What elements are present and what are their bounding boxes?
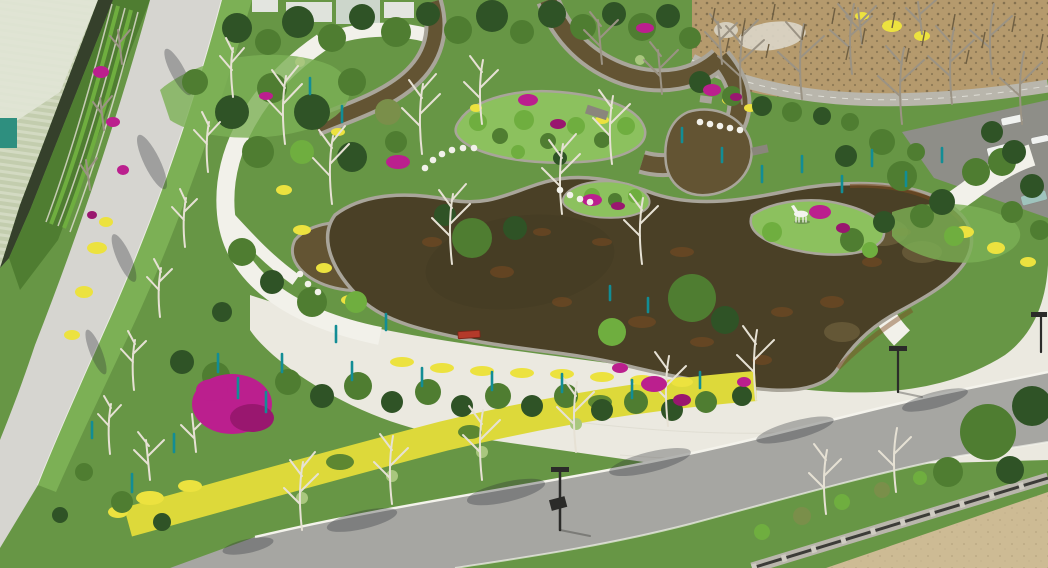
yellow-flowerbed xyxy=(510,368,534,378)
shrub-canopy xyxy=(960,404,1016,460)
algae-patch xyxy=(862,257,882,267)
shrub-canopy xyxy=(929,189,955,215)
stepping-stone xyxy=(422,165,429,172)
shrub-canopy xyxy=(944,226,964,246)
shrub-canopy xyxy=(521,395,543,417)
bougainvillea-cluster xyxy=(386,155,410,169)
shrub-canopy xyxy=(996,456,1024,484)
bougainvillea-cluster xyxy=(117,165,129,175)
bougainvillea-cluster xyxy=(518,94,538,106)
shrub-canopy xyxy=(260,270,284,294)
pond-reflection xyxy=(824,322,860,342)
shrub-canopy xyxy=(294,94,330,130)
shrub-canopy xyxy=(762,222,782,242)
shrub-canopy xyxy=(813,107,831,125)
shrub-canopy xyxy=(290,140,314,164)
shrub-canopy xyxy=(310,384,334,408)
shrub-canopy xyxy=(570,14,596,40)
yellow-flowerbed xyxy=(276,185,292,195)
shrub-canopy xyxy=(242,136,274,168)
stepping-stone xyxy=(567,192,574,199)
stepping-stone xyxy=(471,145,478,152)
shrub-canopy xyxy=(153,513,171,531)
bougainvillea-cluster xyxy=(230,404,274,432)
shrub-canopy xyxy=(782,102,802,122)
algae-patch xyxy=(690,337,714,347)
shrub-canopy xyxy=(514,110,534,130)
stepping-stone xyxy=(430,157,437,164)
shrub-canopy xyxy=(469,113,487,131)
shrub-canopy xyxy=(337,142,367,172)
yellow-flowerbed xyxy=(136,491,164,505)
yellow-flowerbed xyxy=(987,242,1005,254)
bougainvillea-cluster xyxy=(106,117,120,127)
yellow-flowerbed xyxy=(75,286,93,298)
lamp-head xyxy=(551,467,569,472)
shrub-canopy xyxy=(591,399,613,421)
stepping-stone xyxy=(587,199,594,206)
shrub-canopy xyxy=(981,121,1003,143)
bougainvillea-cluster xyxy=(641,376,667,392)
stepping-stone xyxy=(557,187,564,194)
stepping-stone xyxy=(315,289,322,296)
hedge-gap xyxy=(326,454,354,470)
lamp-head xyxy=(889,346,907,351)
yellow-flowerbed xyxy=(430,363,454,373)
farm-water-tank xyxy=(0,118,17,148)
shrub-canopy xyxy=(873,211,895,233)
shrub-canopy xyxy=(381,391,403,413)
shrub-canopy xyxy=(1020,174,1044,198)
shrub-canopy xyxy=(668,274,716,322)
shrub-canopy xyxy=(338,68,366,96)
bougainvillea-cluster xyxy=(611,202,625,210)
shrub-canopy xyxy=(679,27,701,49)
algae-patch xyxy=(490,266,514,278)
yellow-flowerbed xyxy=(470,366,494,376)
shrub-canopy xyxy=(381,17,411,47)
shrub-canopy xyxy=(711,306,739,334)
stepping-stone xyxy=(449,147,456,154)
shrub-canopy xyxy=(510,20,534,44)
shrub-canopy xyxy=(476,0,508,32)
stepping-stone xyxy=(727,125,734,132)
shrub-canopy xyxy=(511,145,525,159)
shrub-canopy xyxy=(255,29,281,55)
algae-patch xyxy=(592,238,612,246)
algae-patch xyxy=(820,296,844,308)
yellow-flowerbed xyxy=(390,357,414,367)
shrub-canopy xyxy=(1001,201,1023,223)
yellow-flowerbed xyxy=(178,480,202,492)
algae-patch xyxy=(670,247,694,257)
shrub-canopy xyxy=(567,117,585,135)
bougainvillea-cluster xyxy=(703,84,721,96)
shrub-canopy xyxy=(862,242,878,258)
shrub-canopy xyxy=(913,471,927,485)
shrub-canopy xyxy=(375,99,401,125)
yellow-flowerbed xyxy=(590,372,614,382)
shrub-canopy xyxy=(170,350,194,374)
shrub-canopy xyxy=(841,113,859,131)
algae-patch xyxy=(533,228,551,236)
shrub-canopy xyxy=(695,391,717,413)
shrub-canopy xyxy=(297,287,327,317)
shrub-canopy xyxy=(485,383,511,409)
stepping-stone xyxy=(577,196,584,203)
stepping-stone xyxy=(717,123,724,130)
shrub-canopy xyxy=(344,372,372,400)
bougainvillea-cluster xyxy=(673,394,691,406)
yellow-flowerbed xyxy=(293,225,311,235)
algae-patch xyxy=(552,297,572,307)
shrub-canopy xyxy=(538,0,566,28)
shrub-canopy xyxy=(503,216,527,240)
shrub-canopy xyxy=(933,457,963,487)
shrub-canopy xyxy=(275,369,301,395)
bougainvillea-cluster xyxy=(612,363,628,373)
shrub-canopy xyxy=(52,507,68,523)
bougainvillea-cluster xyxy=(196,379,228,401)
shrub-canopy xyxy=(1002,140,1026,164)
bougainvillea-cluster xyxy=(93,66,109,78)
algae-patch xyxy=(771,307,793,317)
stepping-stone xyxy=(460,145,467,152)
shrub-canopy xyxy=(182,69,208,95)
building-roof xyxy=(252,0,278,12)
shrub-canopy xyxy=(732,386,752,406)
yellow-flowerbed xyxy=(64,330,80,340)
shrub-canopy xyxy=(295,57,305,67)
shrub-canopy xyxy=(75,463,93,481)
yellow-flowerbed xyxy=(87,242,107,254)
bougainvillea-cluster xyxy=(259,92,273,100)
lamp-head xyxy=(1031,312,1047,317)
shrub-canopy xyxy=(874,482,890,498)
yellow-flowerbed xyxy=(1020,257,1036,267)
shrub-canopy xyxy=(492,128,508,144)
shrub-canopy xyxy=(617,117,635,135)
stepping-stone xyxy=(707,121,714,128)
shrub-canopy xyxy=(962,158,990,186)
shrub-canopy xyxy=(345,291,367,313)
shrub-canopy xyxy=(282,6,314,38)
shrub-canopy xyxy=(349,4,375,30)
bougainvillea-cluster xyxy=(836,223,850,233)
stepping-stone xyxy=(737,127,744,134)
bougainvillea-cluster xyxy=(550,119,566,129)
stepping-stone xyxy=(305,281,312,288)
algae-patch xyxy=(422,237,442,247)
red-bench xyxy=(458,330,480,339)
shrub-canopy xyxy=(111,491,133,513)
shrub-canopy xyxy=(907,143,925,161)
shrub-canopy xyxy=(476,446,488,458)
shrub-canopy xyxy=(444,16,472,44)
stepping-stone xyxy=(297,271,304,278)
shrub-canopy xyxy=(598,318,626,346)
shrub-canopy xyxy=(752,96,772,116)
shrub-canopy xyxy=(416,2,440,26)
shrub-canopy xyxy=(452,218,492,258)
shrub-canopy xyxy=(415,379,441,405)
bougainvillea-cluster xyxy=(737,377,751,387)
shrub-canopy xyxy=(834,494,850,510)
bougainvillea-cluster xyxy=(809,205,831,219)
algae-patch xyxy=(628,316,656,328)
shrub-canopy xyxy=(570,418,582,430)
shrub-canopy xyxy=(385,131,407,153)
bougainvillea-cluster xyxy=(730,93,742,101)
hedge-gap xyxy=(458,425,482,439)
yellow-flowerbed xyxy=(316,263,332,273)
yellow-flowerbed xyxy=(99,217,113,227)
park-aerial-photo xyxy=(0,0,1048,568)
shrub-canopy xyxy=(754,524,770,540)
shrub-canopy xyxy=(656,4,680,28)
shrub-canopy xyxy=(215,95,249,129)
shrub-canopy xyxy=(793,507,811,525)
shrub-canopy xyxy=(228,238,256,266)
bougainvillea-cluster xyxy=(636,23,654,33)
bougainvillea-cluster xyxy=(87,211,97,219)
shrub-canopy xyxy=(318,24,346,52)
shrub-canopy xyxy=(602,2,626,26)
shrub-canopy xyxy=(887,161,917,191)
shrub-canopy xyxy=(212,302,232,322)
shrub-canopy xyxy=(624,390,648,414)
shrub-canopy xyxy=(835,145,857,167)
building-roof xyxy=(384,2,414,18)
stepping-stone xyxy=(439,151,446,158)
screenshot-stage xyxy=(0,0,1048,568)
stepping-stone xyxy=(697,119,704,126)
